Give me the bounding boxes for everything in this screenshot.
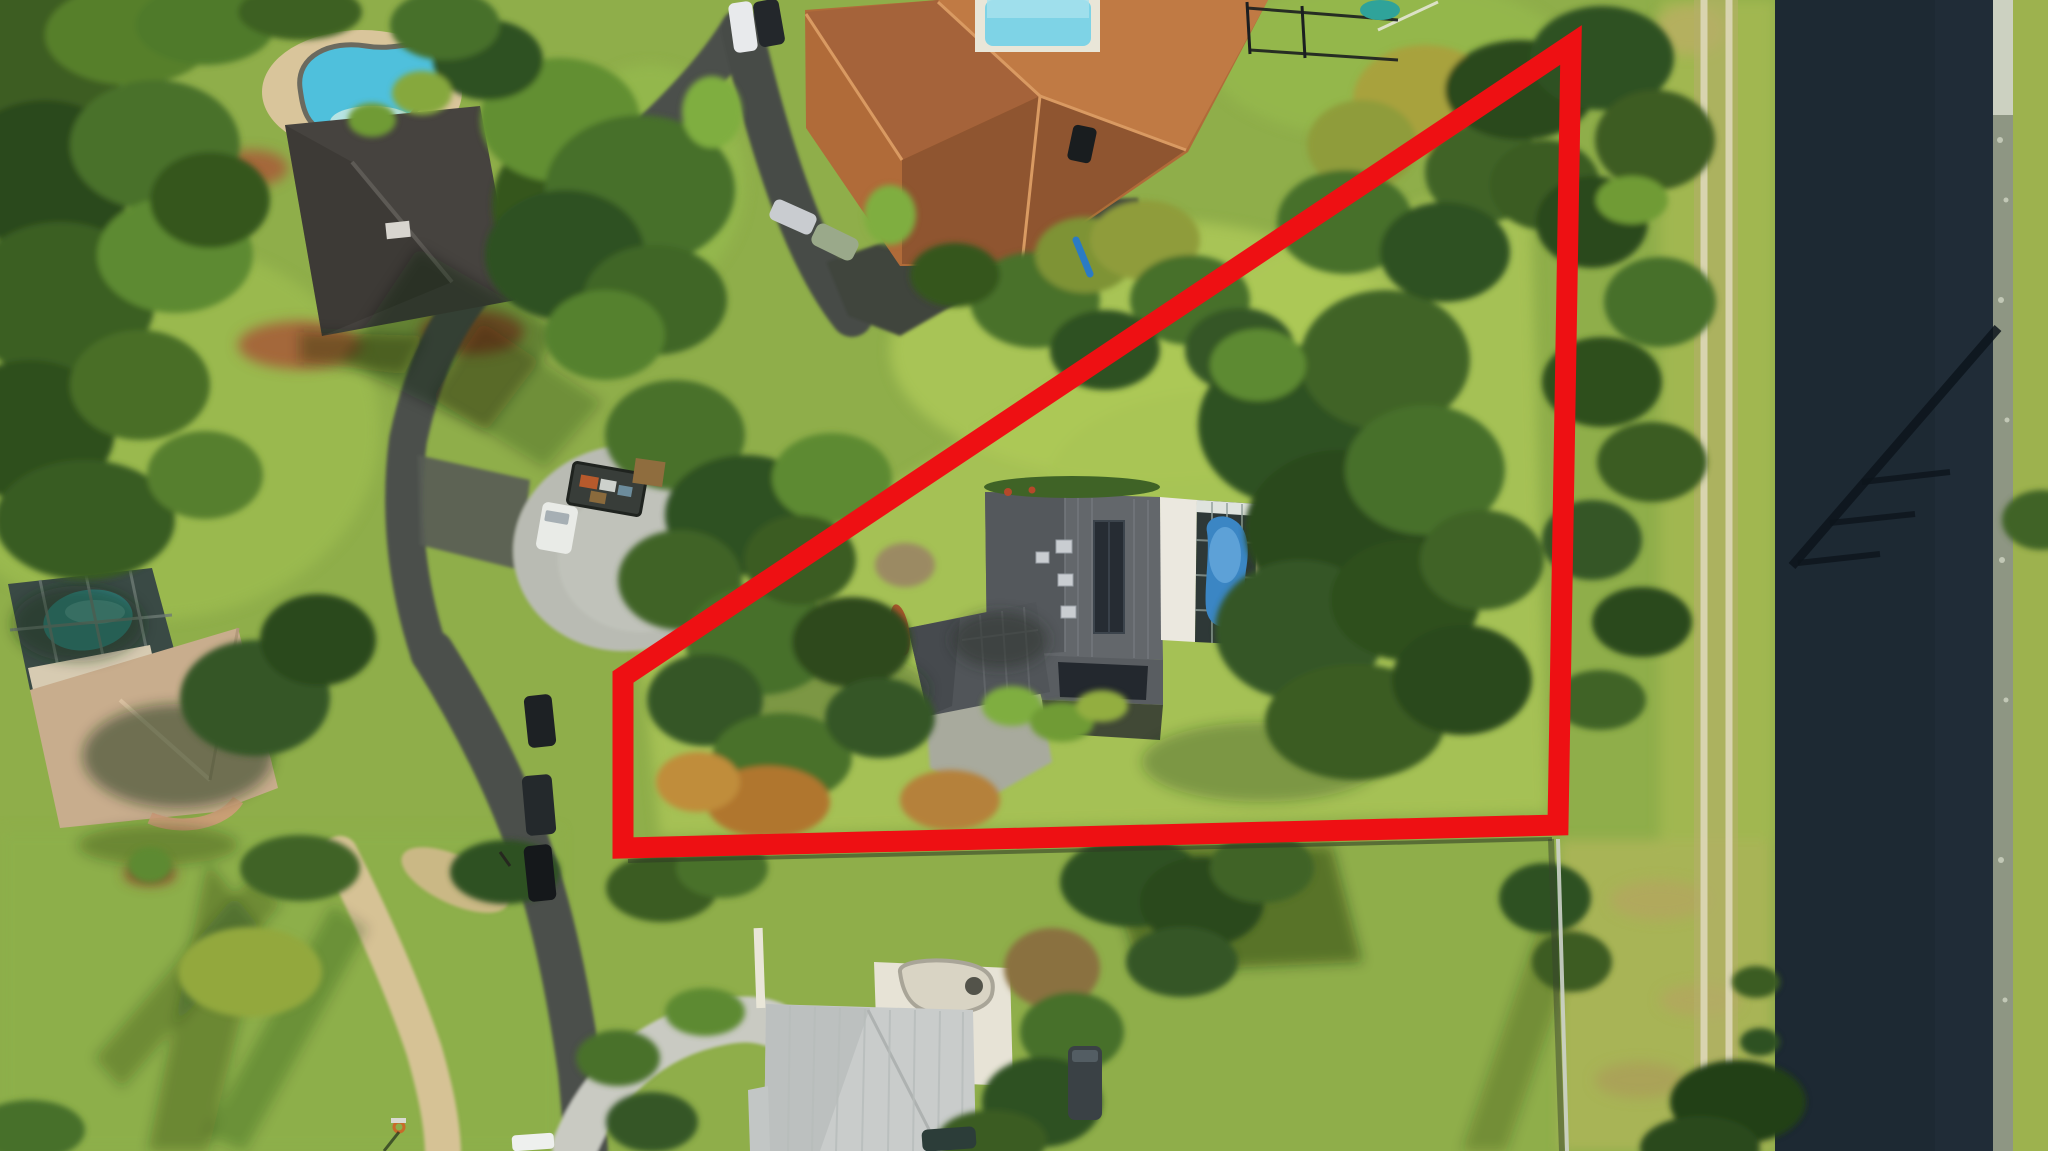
rv-roof-highlight [1072,1050,1098,1062]
white-flat-roof [1160,497,1197,642]
teal-car [921,1126,976,1151]
tree-canopy [665,988,745,1036]
tree-canopy [825,678,935,758]
tree-canopy [910,243,1000,307]
tree-canopy [1597,422,1707,502]
tree-canopy [178,927,322,1017]
aerial-photo-stage [0,0,2048,1151]
riprap-rock [1998,297,2004,303]
riprap-rock [1998,857,2004,863]
tree-canopy [260,594,376,686]
riprap-rock [2003,998,2008,1003]
tree-canopy [147,431,263,519]
parked-dark-car [523,694,556,749]
riprap-bank-bright [1993,0,2015,115]
palm-tree [1076,690,1128,722]
tree-canopy [1420,510,1544,610]
far-bank-grass [2013,0,2048,1151]
flowering-shrub [1029,487,1036,494]
tree-canopy [1604,257,1716,347]
pool-cover [1209,527,1241,583]
tree-canopy [240,835,360,901]
tree-canopy [1592,587,1692,657]
riprap-rock [2005,418,2010,423]
palm-tree [864,185,916,245]
autumn-tree [656,752,740,812]
palm-tree [392,71,452,115]
tree-canopy [606,1092,698,1151]
pool-drain-hole [965,977,983,995]
dry-branches [875,543,935,587]
autumn-tree [900,770,1000,830]
tree-canopy [576,1030,660,1086]
palm-tree [348,103,396,137]
tree-canopy [792,597,912,687]
riprap-rock [2004,698,2009,703]
roof-bump-out [748,1086,770,1151]
riprap-rock [1999,557,2005,563]
tree-canopy [70,330,210,440]
bush [1732,966,1780,998]
skylight [1061,606,1076,618]
tree-canopy [1126,927,1238,997]
north-pool-shallow [987,0,1089,18]
flowering-shrub [1004,488,1012,496]
skylight [1056,540,1072,553]
riprap-bank [1993,0,2015,1151]
bush [128,847,172,883]
wood-pallet [632,458,665,487]
shade-on-metal-roof [952,612,1048,668]
riprap-rock [1997,137,2003,143]
tree-canopy [1532,932,1612,992]
bush [1740,1028,1780,1056]
dry-grass-patch [1595,1062,1685,1098]
white-car [511,1133,554,1151]
tree-shadow-on-enclosure [12,586,144,662]
canal-water-light-edge [1935,0,1995,1151]
tree-canopy [1595,90,1715,190]
skylight [1036,552,1049,563]
parked-dark-van [521,774,556,836]
basketball-backboard [391,1118,406,1123]
tree-canopy [1380,202,1510,302]
tree-canopy [1499,863,1591,933]
tree-canopy [150,152,270,248]
aerial-photo [0,0,2048,1151]
palm-tree [682,76,742,148]
tree-canopy [545,290,665,380]
skylight [1058,574,1073,586]
tree-canopy [1210,329,1306,401]
tree-canopy [1392,625,1532,735]
chimney [385,221,411,239]
parked-dark-car [523,844,557,903]
riprap-rock [2004,198,2009,203]
teal-play-structure [1360,0,1400,20]
tree-canopy [1596,176,1668,224]
